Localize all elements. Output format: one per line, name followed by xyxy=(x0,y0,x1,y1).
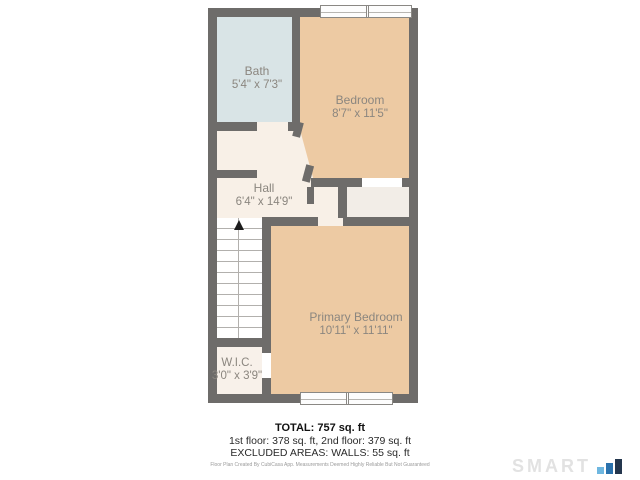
label-bedroom-name: Bedroom xyxy=(332,93,388,107)
wall-wic-top xyxy=(208,338,271,347)
wall-stairs-right xyxy=(262,218,271,338)
window-bottom xyxy=(300,392,393,405)
window-top-mullion xyxy=(366,6,369,17)
smart-logo-bars-icon xyxy=(595,459,622,474)
logo-bar-medium xyxy=(606,463,613,474)
floor-plan-page: Bath 5'4" x 7'3" Bedroom 8'7" x 11'5" Ha… xyxy=(0,0,640,480)
label-bath: Bath 5'4" x 7'3" xyxy=(232,64,282,92)
logo-bar-large xyxy=(615,459,622,474)
total-area-text: TOTAL: 757 sq. ft xyxy=(0,422,640,434)
window-bottom-mullion xyxy=(346,393,349,404)
label-wic-name: W.I.C. xyxy=(212,357,262,370)
wall-outer-right xyxy=(409,8,418,403)
label-wic: W.I.C. 3'0" x 3'9" xyxy=(212,357,262,383)
wall-bath-bedroom xyxy=(292,17,300,131)
label-hall: Hall 6'4" x 14'9" xyxy=(236,181,293,209)
closet-area xyxy=(343,187,409,218)
smart-logo-text: SMART xyxy=(512,458,591,474)
wall-bedroom-bottom-left xyxy=(311,178,362,187)
wall-hall-alcove-stub xyxy=(217,170,257,178)
label-primary-bedroom: Primary Bedroom 10'11" x 11'11" xyxy=(309,310,402,338)
wall-strip-bottom-right xyxy=(343,217,409,226)
label-hall-dims: 6'4" x 14'9" xyxy=(236,195,293,209)
wall-closet-divider xyxy=(338,187,347,218)
wall-wic-right-lower xyxy=(262,378,271,394)
label-bath-dims: 5'4" x 7'3" xyxy=(232,78,282,92)
wall-wic-right-upper-jamb xyxy=(262,347,271,353)
label-primary-bedroom-dims: 10'11" x 11'11" xyxy=(309,324,402,338)
label-wic-dims: 3'0" x 3'9" xyxy=(212,370,262,383)
label-primary-bedroom-name: Primary Bedroom xyxy=(309,310,402,324)
label-hall-name: Hall xyxy=(236,181,293,195)
stairs-up-arrow-icon xyxy=(234,220,244,230)
label-bedroom: Bedroom 8'7" x 11'5" xyxy=(332,93,388,121)
wall-passage-left-stub xyxy=(307,187,314,204)
window-top xyxy=(320,5,412,18)
smart-logo: SMART xyxy=(512,458,622,474)
label-bath-name: Bath xyxy=(232,64,282,78)
staircase xyxy=(217,218,262,338)
staircase-centerline xyxy=(238,218,239,338)
wall-bath-bottom xyxy=(217,122,257,131)
logo-bar-small xyxy=(597,467,604,474)
floor-areas-text: 1st floor: 378 sq. ft, 2nd floor: 379 sq… xyxy=(0,435,640,447)
label-bedroom-dims: 8'7" x 11'5" xyxy=(332,107,388,121)
wall-bedroom-bottom-right-jamb xyxy=(402,178,409,187)
